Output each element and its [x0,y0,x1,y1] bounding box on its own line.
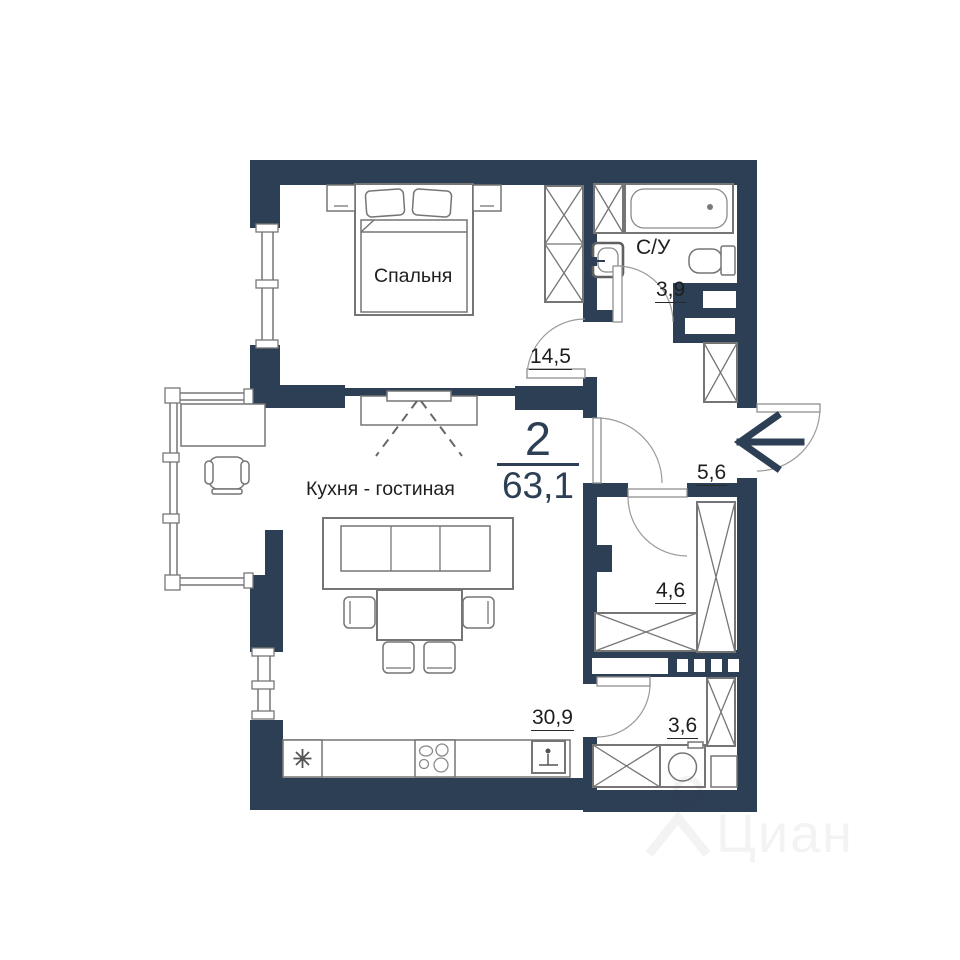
total-area: 63,1 [483,467,593,504]
chair-bottom-1 [383,642,414,673]
storage-wardrobe-horizontal [595,613,697,651]
tv-console [361,391,477,456]
fridge [283,740,322,777]
hallway-area: 5,6 [696,462,727,486]
watermark-text: Циан [716,803,854,865]
nightstand-left [327,185,355,211]
chair-bottom-2 [424,642,455,673]
kitchen-living-area: 30,9 [531,707,574,731]
bedroom-window [256,224,278,348]
hallway-wardrobe [704,343,737,402]
floor-plan: Спальня Кухня - гостиная С/У 14,5 3,9 5,… [0,0,960,960]
laundry-area: 3,6 [667,715,698,739]
door-laundry [597,677,650,737]
laundry-wardrobe [707,678,735,746]
laundry-cabinet [593,745,660,787]
bathroom-label: С/У [636,236,670,259]
bathtub [625,184,733,233]
pillow-left [365,189,405,218]
door-storage [628,489,687,556]
pillow-right [412,189,452,218]
stove [415,740,455,777]
dining-table [377,590,462,640]
chair-left [344,597,375,628]
door-living [593,418,662,483]
nightstand-right [473,185,501,211]
bedroom-label: Спальня [374,266,452,287]
bedroom-area: 14,5 [529,346,572,370]
bed [355,184,473,315]
chair-right [463,597,494,628]
toilet [689,246,735,275]
bathroom-cabinet [594,184,623,233]
bathroom-area: 3,9 [655,279,686,303]
bedroom-wardrobe [545,186,583,302]
kitchen-window [252,648,274,719]
balcony-desk [181,404,265,446]
sofa [323,518,513,589]
laundry-corner-box [711,756,737,787]
kitchen-sink [532,741,565,773]
storage-wardrobe-vertical [697,502,735,652]
tv [387,391,451,401]
kitchen-living-label: Кухня - гостиная [306,479,455,500]
plan-summary: 2 63,1 [483,417,593,504]
storage-area: 4,6 [655,580,686,604]
rooms-count: 2 [483,417,593,460]
balcony-chair [205,457,249,494]
